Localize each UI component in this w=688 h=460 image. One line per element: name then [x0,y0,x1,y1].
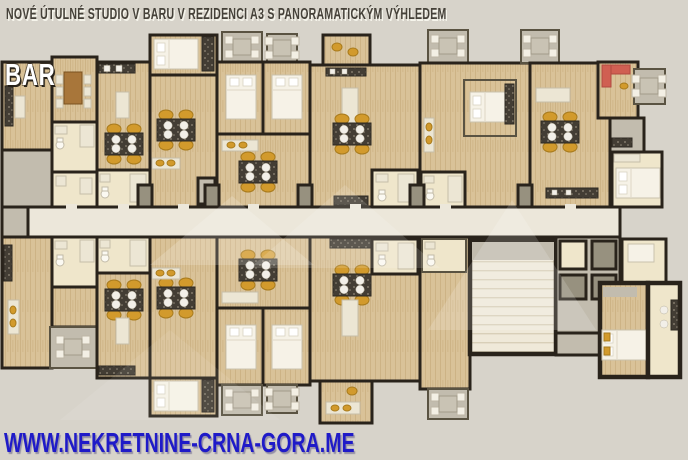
washer [56,176,66,186]
table [536,88,570,102]
bed [154,39,198,69]
apartment-top-5 [420,30,530,207]
door-opening [565,204,576,210]
chair [56,99,63,108]
wardrobe [614,154,640,162]
cushion [426,123,432,131]
room [52,287,97,327]
red-sofa [602,65,611,87]
shower [80,125,94,147]
kitchen-counter [612,138,632,147]
shower [130,240,146,266]
dining-table [64,72,82,104]
bed [616,168,660,198]
sofa [8,300,19,334]
cushion [426,136,432,144]
stove [552,190,557,195]
gold-pillow [604,347,610,355]
chair [660,320,668,328]
door-opening [66,204,77,210]
cushion [156,270,164,276]
desk [15,96,25,118]
desk [671,300,678,330]
decor [332,43,342,51]
utility-shaft [410,185,424,207]
wardrobe [202,37,214,71]
kitchen-nook [323,35,370,65]
cushion [167,160,175,166]
location-label: BAR [5,59,56,90]
bed [272,325,302,369]
toilet [101,187,109,198]
sink [342,69,347,74]
shower [448,176,462,202]
service-room [560,241,586,269]
hallway [2,150,52,208]
chair [56,75,63,84]
utility-shaft [205,185,219,207]
toilet [378,190,386,201]
wardrobe [505,84,514,124]
shower [80,240,94,262]
sink [566,190,571,195]
studio-top-4 [310,35,420,207]
apartment-bottom-left [2,237,97,368]
door-opening [178,204,189,210]
sideboard [5,86,13,126]
cushion [620,83,628,89]
cabinet [80,178,92,194]
chair [660,306,668,314]
utility-shaft [298,185,312,207]
gold-pillow [604,333,610,341]
chair [56,87,63,96]
sink [55,241,67,249]
bed [226,325,256,369]
studio-top-2 [150,35,217,207]
cushion [343,405,351,411]
listing-title: NOVÉ ÚTULNÉ STUDIO V BARU V REZIDENCI A3… [6,6,447,24]
toilet [426,189,434,200]
bed [272,75,302,119]
floor-plan [0,0,688,460]
stove [330,69,335,74]
cushion [10,306,16,314]
cushion [239,142,247,148]
apartments-top-row [2,30,666,208]
corridor-end [2,207,28,237]
decor [347,387,357,395]
sink [425,242,435,249]
sideboard [4,245,12,281]
cushion [227,142,235,148]
bed [628,244,654,262]
service-room [592,241,616,269]
utility-shaft [518,185,532,207]
sink [55,126,67,134]
utility-shaft [138,185,152,207]
sink [100,174,110,182]
wardrobe [603,287,637,297]
stove [104,66,110,72]
floor-plan-image: NOVÉ ÚTULNÉ STUDIO V BARU V REZIDENCI A3… [0,0,688,460]
door-opening [440,204,451,210]
website-url: WWW.NEKRETNINE-CRNA-GORA.ME [4,429,355,457]
island [342,300,358,336]
apartment-top-3 [217,32,310,207]
sink [424,176,434,183]
toilet [101,251,109,262]
chair [84,75,91,84]
chair [84,87,91,96]
bed [226,75,256,119]
decor [348,48,358,56]
sink [116,66,122,72]
chair [84,99,91,108]
cushion [331,405,339,411]
island [116,92,129,118]
cushion [156,160,164,166]
cushion [10,319,16,327]
door-opening [248,204,259,210]
sofa [222,292,258,303]
door-opening [118,204,129,210]
cushion [167,270,175,276]
sink [100,240,110,248]
sink [376,174,388,182]
toilet [56,255,64,266]
toilet [56,138,64,149]
island [116,318,129,344]
